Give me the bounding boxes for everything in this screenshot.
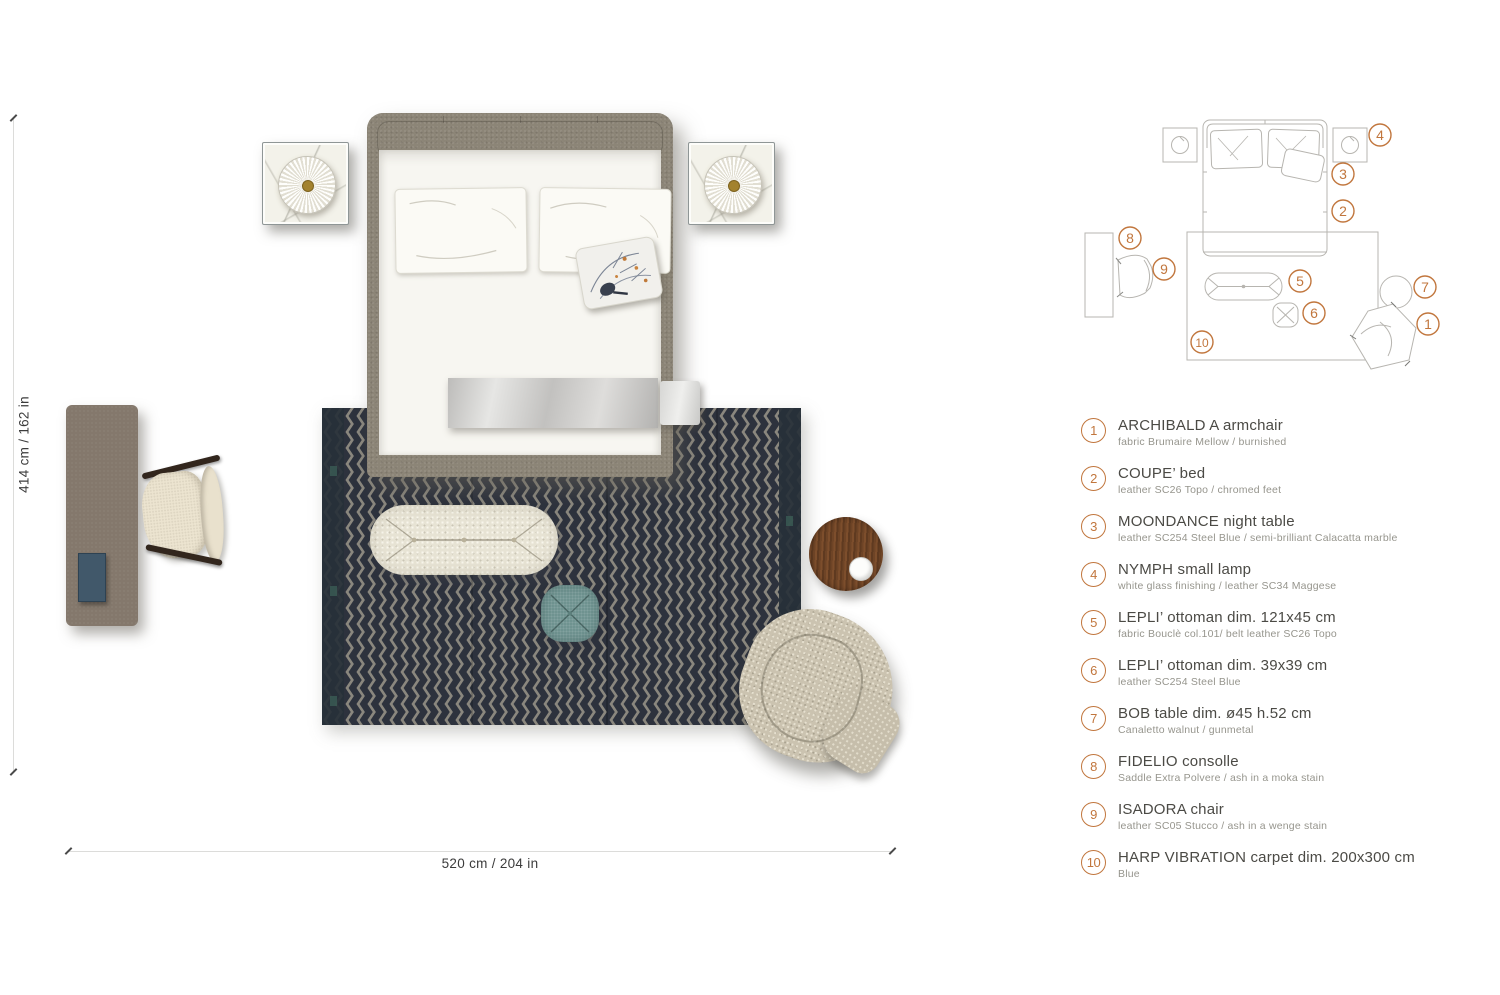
legend-item: 10 HARP VIBRATION carpet dim. 200x300 cm… <box>1081 849 1500 882</box>
pillow-left <box>394 187 527 274</box>
legend-item: 1 ARCHIBALD A armchair fabric Brumaire M… <box>1081 417 1500 450</box>
decorative-pillow <box>574 236 664 311</box>
legend-item: 6 LEPLI’ ottoman dim. 39x39 cm leather S… <box>1081 657 1500 690</box>
legend-item: 2 COUPE’ bed leather SC26 Topo / chromed… <box>1081 465 1500 498</box>
lamp-nymph-right <box>704 156 762 214</box>
headboard-notch <box>520 116 521 123</box>
legend-item-title: LEPLI’ ottoman dim. 39x39 cm <box>1118 657 1327 675</box>
plan-marker-4: 4 <box>1369 124 1391 146</box>
bob-table-object <box>849 557 873 581</box>
ottoman-lepli-small <box>541 585 599 642</box>
legend-item-subtitle: fabric Bouclè col.101/ belt leather SC26… <box>1118 628 1337 641</box>
night-table-right <box>688 142 775 225</box>
plan-marker-6: 6 <box>1303 302 1325 324</box>
legend-item-title: ARCHIBALD A armchair <box>1118 417 1286 435</box>
legend-item-number: 2 <box>1081 466 1106 491</box>
legend-item-number: 9 <box>1081 802 1106 827</box>
legend-item: 4 NYMPH small lamp white glass finishing… <box>1081 561 1500 594</box>
plan-chair <box>1118 255 1153 297</box>
svg-text:5: 5 <box>1296 273 1304 289</box>
bed-bench-end <box>660 381 700 425</box>
ottoman-belt-seams <box>370 505 558 575</box>
legend-item-title: BOB table dim. ø45 h.52 cm <box>1118 705 1312 723</box>
svg-text:2: 2 <box>1339 203 1347 219</box>
legend-item-title: MOONDANCE night table <box>1118 513 1397 531</box>
plan-night-table-left <box>1163 128 1197 162</box>
legend-item: 3 MOONDANCE night table leather SC254 St… <box>1081 513 1500 546</box>
legend-item-title: LEPLI’ ottoman dim. 121x45 cm <box>1118 609 1337 627</box>
legend-item-number: 3 <box>1081 514 1106 539</box>
legend-item-number: 5 <box>1081 610 1106 635</box>
legend-item-number: 1 <box>1081 418 1106 443</box>
legend-item-text: FIDELIO consolle Saddle Extra Polvere / … <box>1118 753 1324 785</box>
legend-item: 9 ISADORA chair leather SC05 Stucco / as… <box>1081 801 1500 834</box>
decorative-pillow-print <box>575 237 662 310</box>
legend-item-title: ISADORA chair <box>1118 801 1327 819</box>
legend-item-text: LEPLI’ ottoman dim. 121x45 cm fabric Bou… <box>1118 609 1337 641</box>
legend-item-title: COUPE’ bed <box>1118 465 1281 483</box>
legend-item-subtitle: Saddle Extra Polvere / ash in a moka sta… <box>1118 772 1324 785</box>
horizontal-dimension-line <box>68 851 893 852</box>
legend-item-text: BOB table dim. ø45 h.52 cm Canaletto wal… <box>1118 705 1312 737</box>
plan-console <box>1085 233 1113 317</box>
svg-text:6: 6 <box>1310 305 1318 321</box>
bed-bench-metal <box>448 378 658 428</box>
plan-marker-2: 2 <box>1332 200 1354 222</box>
plan-marker-1: 1 <box>1417 313 1439 335</box>
lamp-center-dot <box>728 180 740 192</box>
legend-item: 7 BOB table dim. ø45 h.52 cm Canaletto w… <box>1081 705 1500 738</box>
lamp-center-dot <box>302 180 314 192</box>
legend-item-text: ISADORA chair leather SC05 Stucco / ash … <box>1118 801 1327 833</box>
legend-item-subtitle: leather SC254 Steel Blue / semi-brillian… <box>1118 532 1397 545</box>
legend-item-number: 7 <box>1081 706 1106 731</box>
legend-item-number: 6 <box>1081 658 1106 683</box>
plan-night-table-right <box>1333 128 1367 162</box>
svg-text:8: 8 <box>1126 230 1134 246</box>
legend-item-subtitle: Blue <box>1118 868 1415 881</box>
legend-item-subtitle: leather SC05 Stucco / ash in a wenge sta… <box>1118 820 1327 833</box>
legend-item-number: 4 <box>1081 562 1106 587</box>
legend-item-text: ARCHIBALD A armchair fabric Brumaire Mel… <box>1118 417 1286 449</box>
vertical-dimension-line <box>13 118 14 772</box>
legend-item-subtitle: leather SC254 Steel Blue <box>1118 676 1327 689</box>
legend-item: 8 FIDELIO consolle Saddle Extra Polvere … <box>1081 753 1500 786</box>
dimension-tick <box>10 768 18 776</box>
headboard-notch <box>443 116 444 123</box>
product-legend: 1 ARCHIBALD A armchair fabric Brumaire M… <box>1081 417 1500 897</box>
headboard-notch <box>597 116 598 123</box>
horizontal-dimension-label: 520 cm / 204 in <box>390 856 590 871</box>
plan-marker-8: 8 <box>1119 227 1141 249</box>
design-board: 414 cm / 162 in 520 cm / 204 in <box>0 0 1500 995</box>
legend-item-number: 10 <box>1081 850 1106 875</box>
dimension-tick <box>889 847 897 855</box>
plan-marker-5: 5 <box>1289 270 1311 292</box>
legend-item-title: NYMPH small lamp <box>1118 561 1336 579</box>
table-bob <box>809 517 883 591</box>
plan-marker-9: 9 <box>1153 258 1175 280</box>
svg-text:1: 1 <box>1424 316 1432 332</box>
legend-item-number: 8 <box>1081 754 1106 779</box>
vertical-dimension-label: 414 cm / 162 in <box>17 385 32 505</box>
plan-marker-3: 3 <box>1332 163 1354 185</box>
floor-plan-schematic: 12345678910 <box>1080 108 1450 388</box>
plan-marker-10: 10 <box>1191 331 1213 353</box>
legend-item-title: FIDELIO consolle <box>1118 753 1324 771</box>
legend-item-subtitle: fabric Brumaire Mellow / burnished <box>1118 436 1286 449</box>
svg-text:7: 7 <box>1421 279 1429 295</box>
svg-text:4: 4 <box>1376 127 1384 143</box>
lamp-nymph-left <box>278 156 336 214</box>
legend-item-text: MOONDANCE night table leather SC254 Stee… <box>1118 513 1397 545</box>
legend-item-text: LEPLI’ ottoman dim. 39x39 cm leather SC2… <box>1118 657 1327 689</box>
ottoman-x-seams <box>541 585 599 642</box>
chair-isadora <box>135 452 231 570</box>
svg-text:9: 9 <box>1160 261 1168 277</box>
legend-item-text: COUPE’ bed leather SC26 Topo / chromed f… <box>1118 465 1281 497</box>
plan-marker-7: 7 <box>1414 276 1436 298</box>
legend-item-subtitle: leather SC26 Topo / chromed feet <box>1118 484 1281 497</box>
legend-item-text: HARP VIBRATION carpet dim. 200x300 cm Bl… <box>1118 849 1415 881</box>
legend-item: 5 LEPLI’ ottoman dim. 121x45 cm fabric B… <box>1081 609 1500 642</box>
ottoman-lepli-large <box>370 505 558 575</box>
legend-item-subtitle: Canaletto walnut / gunmetal <box>1118 724 1312 737</box>
night-table-left <box>262 142 349 225</box>
console-leather-pad <box>78 553 106 602</box>
pillow-crease-lines <box>395 188 526 273</box>
svg-text:10: 10 <box>1195 336 1209 350</box>
legend-item-subtitle: white glass finishing / leather SC34 Mag… <box>1118 580 1336 593</box>
svg-text:3: 3 <box>1339 166 1347 182</box>
armchair-archibald <box>735 598 897 760</box>
plan-armchair <box>1352 304 1416 369</box>
legend-item-text: NYMPH small lamp white glass finishing /… <box>1118 561 1336 593</box>
plan-bob-table <box>1380 276 1412 308</box>
legend-item-title: HARP VIBRATION carpet dim. 200x300 cm <box>1118 849 1415 867</box>
